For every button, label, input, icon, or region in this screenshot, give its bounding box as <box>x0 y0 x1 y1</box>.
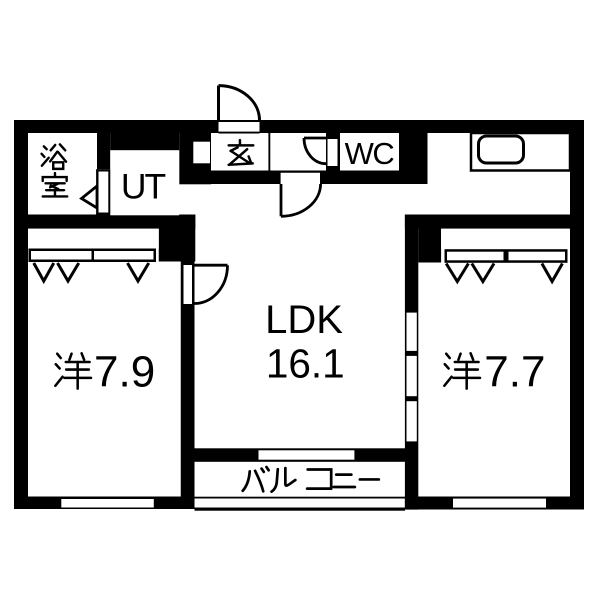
svg-text:7.9: 7.9 <box>94 348 155 397</box>
svg-text:16.1: 16.1 <box>266 341 345 387</box>
svg-text:LDK: LDK <box>265 298 343 342</box>
svg-text:WC: WC <box>345 136 395 171</box>
svg-text:UT: UT <box>121 166 166 206</box>
svg-text:7.7: 7.7 <box>484 348 545 397</box>
